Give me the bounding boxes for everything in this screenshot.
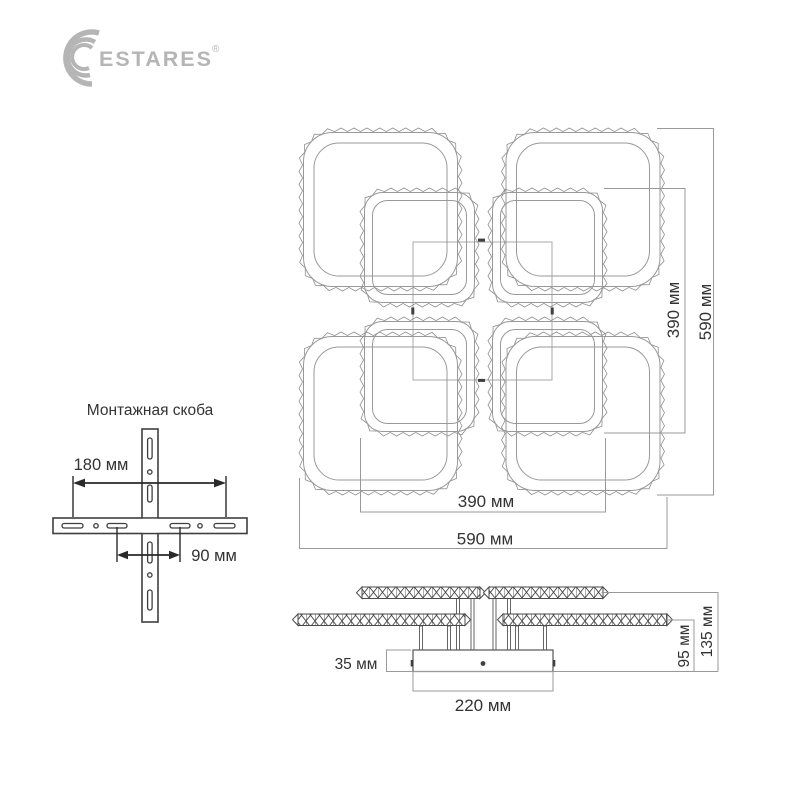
lamp-side-view: 35 мм 220 мм 95 мм 135 мм bbox=[293, 587, 719, 715]
crystal-rings bbox=[299, 128, 665, 495]
bracket-slot bbox=[148, 542, 153, 563]
bracket-hole bbox=[94, 524, 98, 528]
stem bbox=[448, 626, 451, 651]
top-dim-rings-height: 390 мм bbox=[664, 282, 683, 338]
base-plate-side bbox=[413, 650, 553, 672]
ring-serrated-edge bbox=[299, 332, 462, 495]
arrow-right-icon bbox=[169, 551, 180, 559]
bracket-slot bbox=[148, 438, 153, 459]
arrow-right-icon bbox=[214, 479, 226, 488]
top-dim-rings-width: 390 мм bbox=[458, 492, 514, 511]
ring-serrated-edge bbox=[502, 332, 665, 495]
ring-outline bbox=[517, 143, 650, 276]
arrow-left-icon bbox=[73, 479, 85, 488]
bracket-slot bbox=[214, 524, 235, 529]
bracket-dim-outer: 180 мм bbox=[74, 456, 129, 474]
bracket-slot bbox=[148, 485, 153, 502]
top-dim-overall-height: 590 мм bbox=[696, 284, 715, 340]
bracket-slot bbox=[62, 524, 83, 529]
side-dim-base-width: 220 мм bbox=[455, 696, 511, 715]
connector-tick bbox=[478, 239, 485, 242]
base-plate-top bbox=[413, 242, 552, 380]
stem bbox=[516, 626, 519, 651]
ring-serrated-edge bbox=[360, 317, 479, 436]
stem bbox=[420, 626, 423, 651]
top-dim-overall-width: 590 мм bbox=[457, 530, 513, 549]
crystal-bar-side bbox=[362, 587, 480, 599]
lamp-top-view: 390 мм 590 мм 390 мм 590 мм bbox=[299, 128, 715, 549]
base-side-tab bbox=[553, 660, 556, 667]
bracket-hole bbox=[148, 573, 152, 577]
bracket-dim-inner: 90 мм bbox=[191, 547, 237, 565]
crystal-bar-side bbox=[503, 614, 667, 626]
bracket-title: Монтажная скоба bbox=[87, 402, 214, 419]
registered-mark: ® bbox=[212, 44, 220, 55]
ring-outline bbox=[517, 347, 650, 480]
stem bbox=[544, 626, 547, 651]
connector-tick bbox=[551, 308, 554, 315]
drawing-svg: ESTARES ® Монтажная скоба 180 мм 90 мм bbox=[0, 0, 800, 800]
ring-outline bbox=[501, 201, 595, 295]
connector-tick bbox=[478, 379, 485, 382]
arrow-left-icon bbox=[117, 551, 128, 559]
base-side-tab bbox=[411, 660, 414, 667]
ring-outline bbox=[304, 337, 458, 491]
ring-outline bbox=[373, 201, 467, 295]
stem bbox=[471, 599, 474, 651]
ceiling-lamp-technical-drawing: ESTARES ® Монтажная скоба 180 мм 90 мм bbox=[0, 0, 800, 800]
mounting-bracket-view: Монтажная скоба 180 мм 90 мм bbox=[53, 402, 247, 622]
ring-outline bbox=[506, 337, 660, 491]
bracket-hole bbox=[148, 470, 152, 474]
side-dim-rings-level: 95 мм bbox=[676, 625, 693, 668]
ring-serrated-edge bbox=[502, 128, 665, 291]
ring-outline bbox=[304, 133, 458, 287]
crystal-bar-side bbox=[298, 614, 465, 626]
ring-outline bbox=[493, 322, 603, 432]
crystal-bar-side bbox=[489, 587, 603, 599]
ring-outline bbox=[314, 143, 447, 276]
brand-logo: ESTARES ® bbox=[66, 32, 220, 84]
ring-outline bbox=[506, 133, 660, 287]
base-center-dot bbox=[481, 661, 486, 666]
side-dim-overall-height: 135 мм bbox=[699, 606, 716, 657]
logo-arc-icon bbox=[72, 45, 92, 69]
side-dim-base-height: 35 мм bbox=[335, 656, 378, 673]
bracket-hole bbox=[198, 524, 202, 528]
brand-name: ESTARES bbox=[99, 47, 213, 71]
ring-serrated-edge bbox=[299, 128, 462, 291]
stem bbox=[493, 599, 496, 651]
connector-tick bbox=[411, 308, 414, 315]
ring-outline bbox=[373, 330, 467, 424]
ring-outline bbox=[314, 347, 447, 480]
bracket-slot bbox=[148, 590, 153, 610]
